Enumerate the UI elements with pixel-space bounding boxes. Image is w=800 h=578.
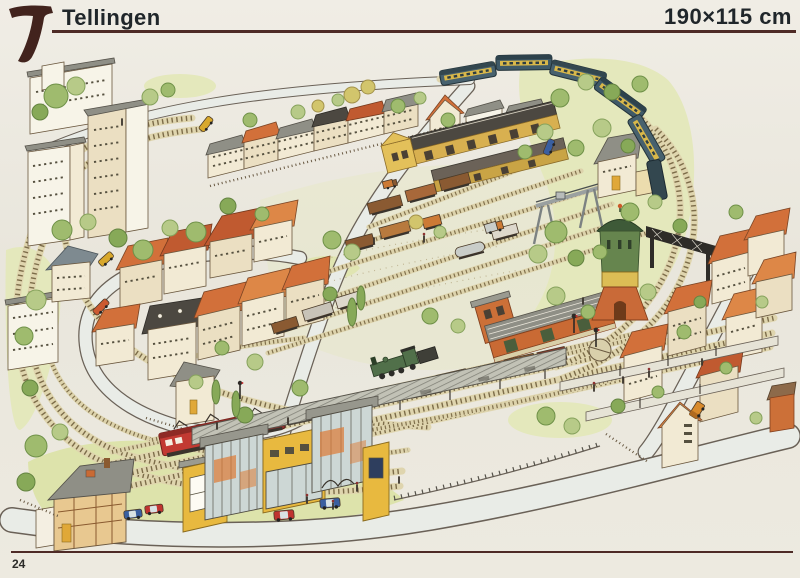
footer-rule bbox=[11, 551, 793, 553]
header-rule bbox=[52, 30, 796, 33]
page-title: Tellingen bbox=[62, 5, 161, 31]
layout-illustration: FINA bbox=[0, 0, 800, 578]
scanned-book-page: { "page": { "plan_number": "7", "title":… bbox=[0, 0, 800, 578]
page-number: 24 bbox=[12, 557, 25, 571]
layout-dimensions: 190×115 cm bbox=[664, 4, 792, 30]
plan-number-numeral bbox=[5, 2, 55, 66]
